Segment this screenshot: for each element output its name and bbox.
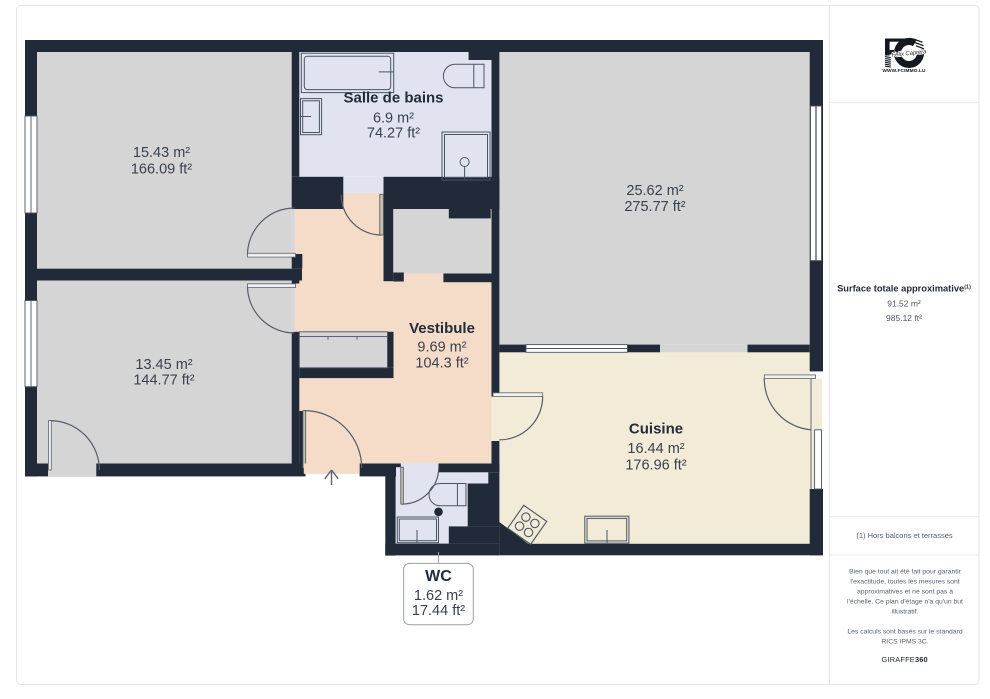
svg-text:illustratif.: illustratif.: [892, 609, 919, 616]
svg-text:Cuisine: Cuisine: [629, 421, 683, 438]
svg-text:l'exactitude, toutes les mesur: l'exactitude, toutes les mesures sont: [850, 578, 959, 585]
svg-text:l'échelle. Ce plan d'étage n'a: l'échelle. Ce plan d'étage n'a qu'un but: [847, 599, 963, 606]
svg-text:144.77 ft²: 144.77 ft²: [133, 372, 194, 388]
svg-text:9.69 m²: 9.69 m²: [417, 339, 466, 355]
svg-text:GIRAFFE360: GIRAFFE360: [882, 655, 928, 664]
svg-text:74.27 ft²: 74.27 ft²: [367, 126, 420, 142]
svg-text:1.62 m²: 1.62 m²: [414, 588, 463, 604]
svg-text:Vestibule: Vestibule: [409, 320, 475, 337]
svg-text:16.44 m²: 16.44 m²: [627, 441, 684, 457]
svg-text:91.52 m²: 91.52 m²: [887, 299, 921, 309]
svg-text:(1) Hors balcons et terrasses: (1) Hors balcons et terrasses: [856, 531, 953, 540]
svg-text:985.12 ft²: 985.12 ft²: [886, 313, 922, 323]
svg-text:166.09 ft²: 166.09 ft²: [131, 162, 192, 178]
svg-text:25.62 m²: 25.62 m²: [626, 183, 683, 199]
svg-text:104.3 ft²: 104.3 ft²: [415, 356, 468, 372]
svg-text:Bien que tout ait été fait pou: Bien que tout ait été fait pour garantir: [849, 568, 962, 575]
svg-text:176.96 ft²: 176.96 ft²: [625, 458, 686, 474]
svg-text:6.9 m²: 6.9 m²: [373, 111, 414, 127]
svg-text:approximatives et ne sont pas: approximatives et ne sont pas à: [857, 589, 953, 596]
svg-text:WWW.FCIMMO.LU: WWW.FCIMMO.LU: [882, 68, 926, 74]
svg-text:Les calculs sont basés sur le: Les calculs sont basés sur le standard: [847, 629, 962, 636]
svg-text:15.43 m²: 15.43 m²: [133, 145, 190, 161]
svg-text:Surface totale approximative(1: Surface totale approximative(1): [837, 284, 971, 294]
svg-text:275.77 ft²: 275.77 ft²: [624, 199, 685, 215]
svg-text:13.45 m²: 13.45 m²: [135, 357, 192, 373]
svg-text:17.44 ft²: 17.44 ft²: [412, 603, 465, 619]
svg-text:RICS IPMS 3C.: RICS IPMS 3C.: [881, 638, 928, 645]
svg-text:Salle de bains: Salle de bains: [343, 90, 443, 107]
svg-text:WC: WC: [425, 568, 452, 585]
